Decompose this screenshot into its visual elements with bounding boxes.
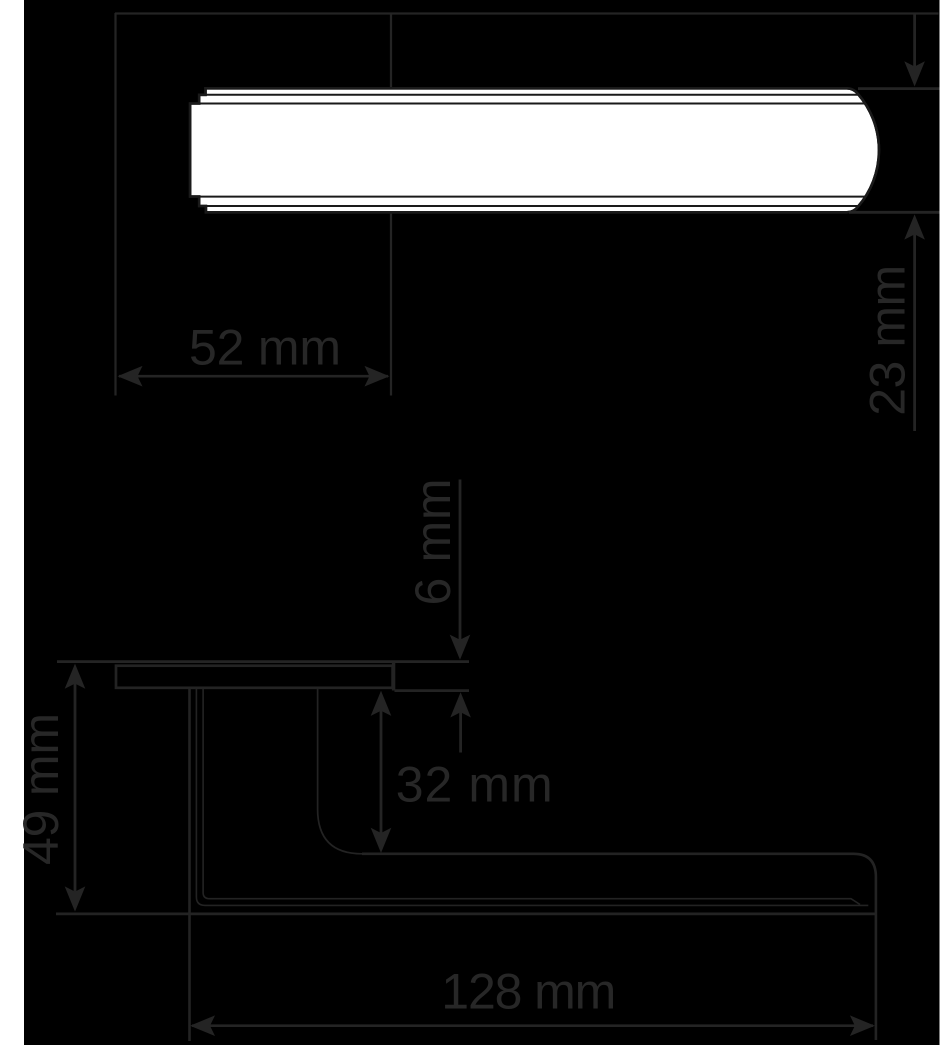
svg-text:32 mm: 32 mm — [396, 757, 553, 813]
svg-text:52 mm: 52 mm — [189, 319, 341, 375]
svg-text:6 mm: 6 mm — [405, 479, 461, 606]
svg-text:23 mm: 23 mm — [860, 265, 916, 416]
svg-text:49 mm: 49 mm — [13, 713, 69, 865]
svg-text:128 mm: 128 mm — [441, 964, 616, 1020]
